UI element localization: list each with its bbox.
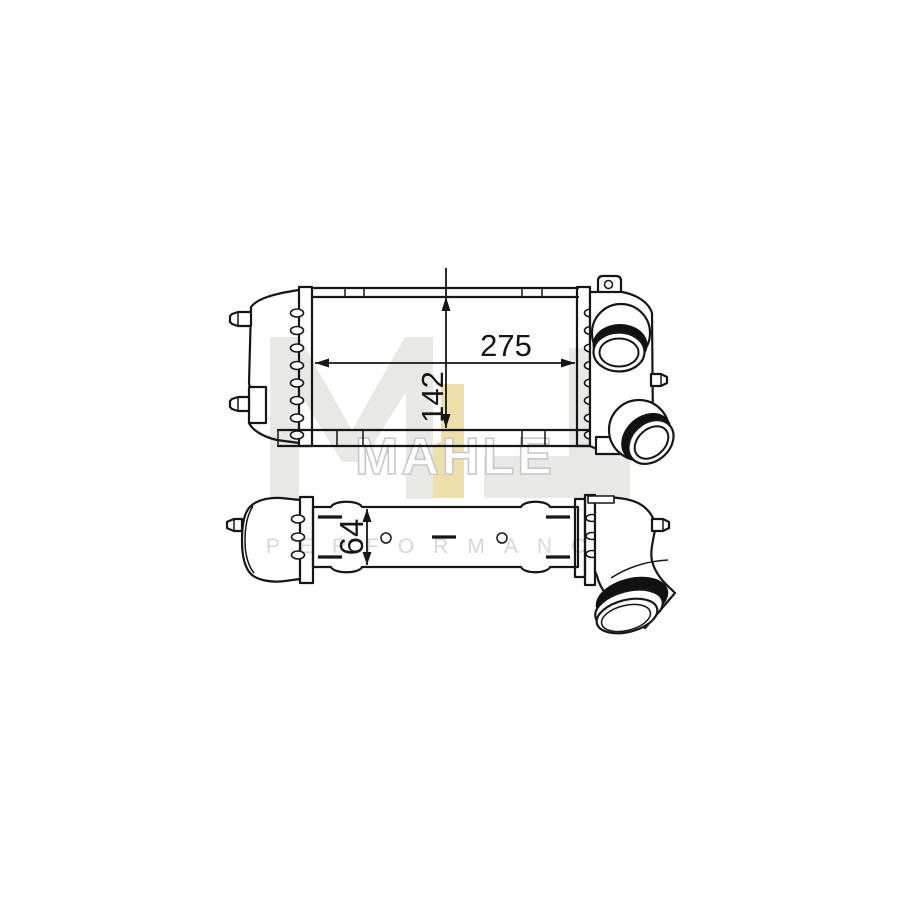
dimension-core-width: 275 [315, 328, 575, 368]
left-tank-bracket [249, 387, 266, 423]
mount-pin-right [651, 374, 667, 386]
watermark: MAHLE PERFORMANCE [266, 337, 638, 558]
elbow-top-notch [588, 496, 614, 503]
side-elbow-outlet [588, 496, 675, 639]
mount-pin-lower-left [230, 397, 249, 411]
dimension-label-142: 142 [415, 371, 450, 423]
dimension-label-275: 275 [480, 328, 532, 363]
watermark-brand-text: MAHLE [355, 428, 555, 486]
technical-drawing: MAHLE PERFORMANCE [0, 0, 900, 900]
arrowhead-up [442, 297, 451, 311]
mount-pin-side-left [227, 519, 242, 531]
mount-tab-top [598, 276, 621, 293]
mount-pin-side-right [652, 519, 669, 531]
arrowhead-left [315, 359, 329, 368]
core [312, 288, 578, 297]
side-view: 64 [227, 495, 675, 639]
right-tank [590, 276, 682, 473]
dimension-label-64: 64 [333, 519, 370, 556]
hose-port-top [592, 304, 650, 372]
mount-pin-upper-left [230, 312, 251, 326]
screenshot-canvas: MAHLE PERFORMANCE [0, 0, 900, 900]
